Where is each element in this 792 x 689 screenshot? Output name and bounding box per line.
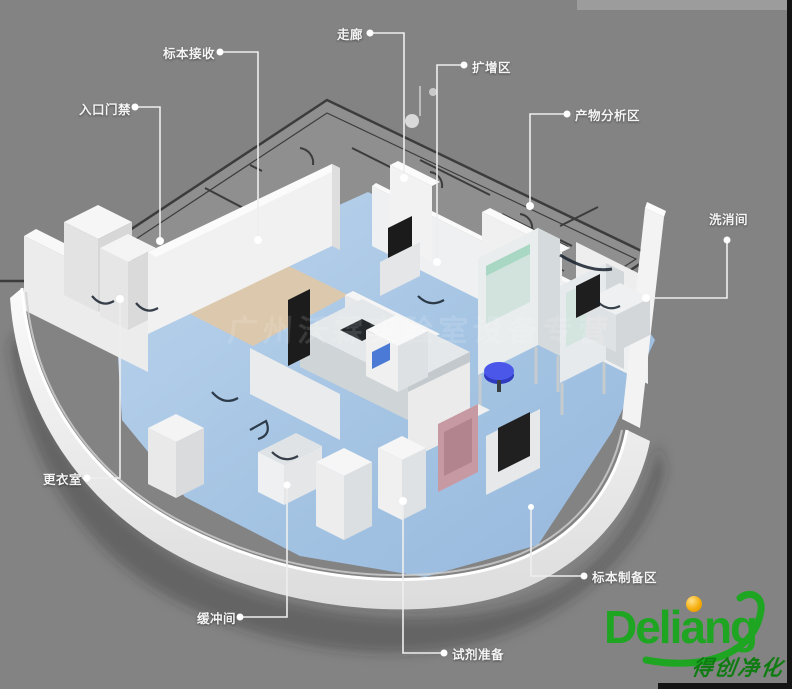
label-corridor: 走廊 bbox=[337, 24, 363, 43]
label-amplification-area: 扩增区 bbox=[472, 57, 511, 76]
watermark-text: 广州沃霖实验室设备专营 bbox=[226, 306, 614, 350]
label-buffer-room: 缓冲间 bbox=[197, 608, 236, 627]
lab-3d-floorplan-image: 广州沃霖实验室设备专营 标本接收 入口门禁 走廊 扩增区 产物分析区 洗消间 更… bbox=[0, 0, 792, 689]
logo-brand-text: Deliang bbox=[604, 604, 756, 650]
label-specimen-preparation-area: 标本制备区 bbox=[592, 567, 657, 586]
label-entrance-access: 入口门禁 bbox=[79, 99, 131, 118]
label-changing-room: 更衣室 bbox=[43, 469, 82, 488]
label-specimen-receiving: 标本接收 bbox=[163, 43, 215, 62]
label-washing-room: 洗消间 bbox=[709, 209, 748, 228]
logo-tagline-text: 得创净化 bbox=[690, 652, 786, 682]
right-edge-strip bbox=[787, 0, 792, 689]
label-product-analysis-area: 产物分析区 bbox=[575, 105, 640, 124]
deliang-logo: Deliang 得创净化 bbox=[598, 588, 792, 689]
label-reagent-preparation: 试剂准备 bbox=[452, 644, 504, 663]
top-right-strip bbox=[577, 0, 792, 10]
logo-dot-icon bbox=[686, 596, 702, 612]
